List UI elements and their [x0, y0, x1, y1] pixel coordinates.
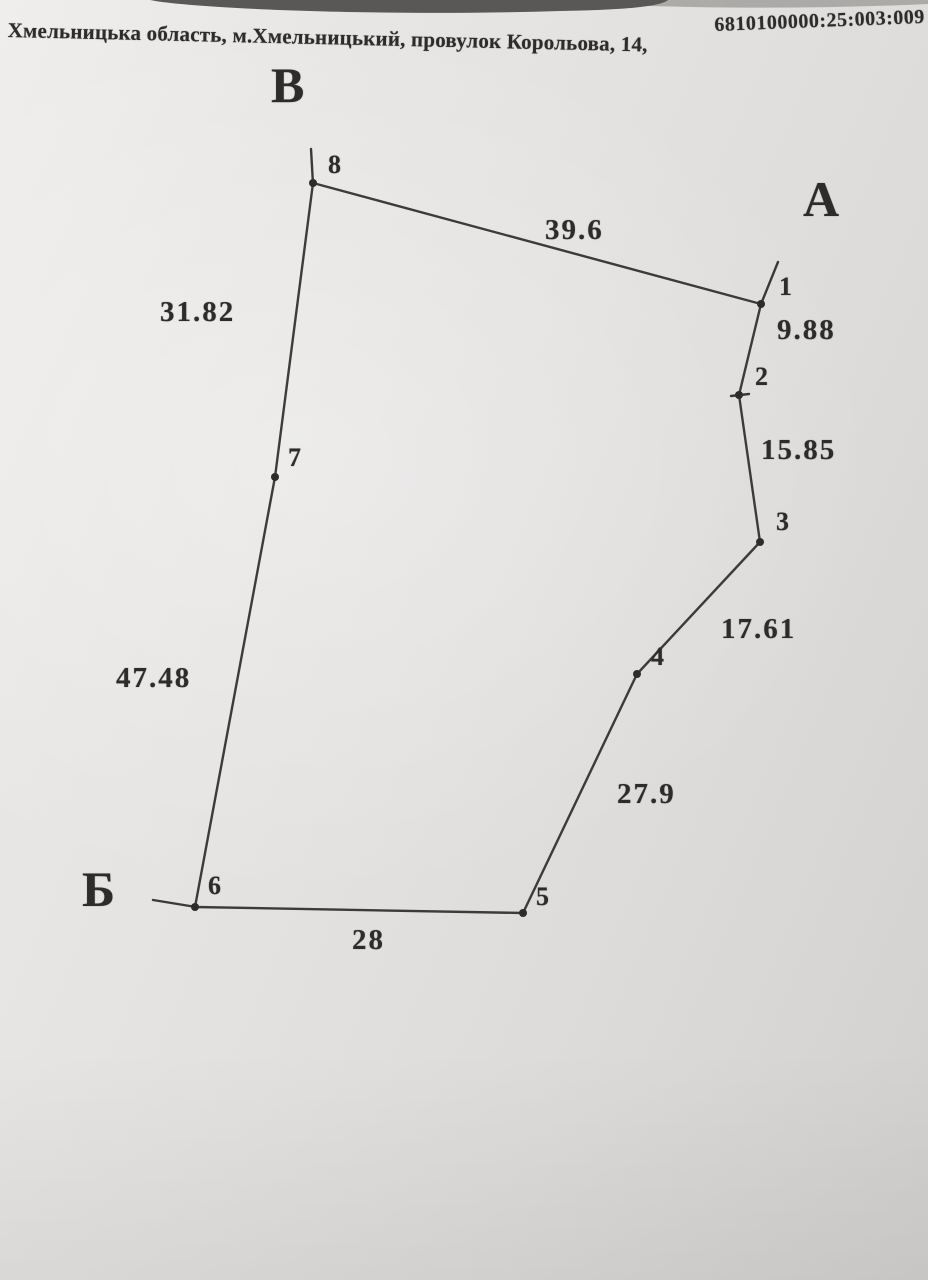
vertex-dot	[756, 538, 764, 546]
edge-length-label: 27.9	[617, 778, 676, 811]
parcel-boundary	[195, 183, 761, 913]
edge-length-label: 15.85	[761, 434, 836, 467]
vertex-number: 7	[288, 443, 302, 473]
vertex-dot	[309, 179, 317, 187]
photo-edge-dark	[150, 0, 668, 13]
vertex-dot	[191, 903, 199, 911]
edge-length-label: 28	[352, 924, 385, 957]
edge-length-label: 31.82	[160, 296, 235, 329]
vertex-dot	[519, 909, 527, 917]
vertex-number: 6	[208, 871, 222, 901]
vertex-number: 4	[651, 642, 665, 672]
vertex-tick	[761, 262, 778, 304]
vertex-tick	[153, 900, 196, 907]
edge-length-label: 9.88	[777, 314, 836, 347]
vertex-dot	[735, 391, 743, 399]
document-page: { "header": { "address": "Хмельницька об…	[0, 0, 928, 1280]
edge-length-label: 17.61	[721, 613, 796, 646]
vertex-number: 8	[328, 150, 342, 180]
edge-length-label: 39.6	[545, 214, 604, 247]
edge-length-label: 47.48	[116, 662, 191, 695]
vertex-dot	[271, 473, 279, 481]
vertex-dot	[757, 300, 765, 308]
vertex-number: 1	[779, 272, 793, 302]
vertex-number: 3	[776, 507, 790, 537]
vertex-dot	[633, 670, 641, 678]
vertex-tick	[311, 149, 313, 184]
corner-letter: Б	[82, 860, 116, 918]
vertex-number: 2	[755, 362, 769, 392]
vertex-number: 5	[536, 882, 550, 912]
corner-letter: В	[271, 56, 305, 114]
corner-letter: А	[803, 170, 840, 228]
